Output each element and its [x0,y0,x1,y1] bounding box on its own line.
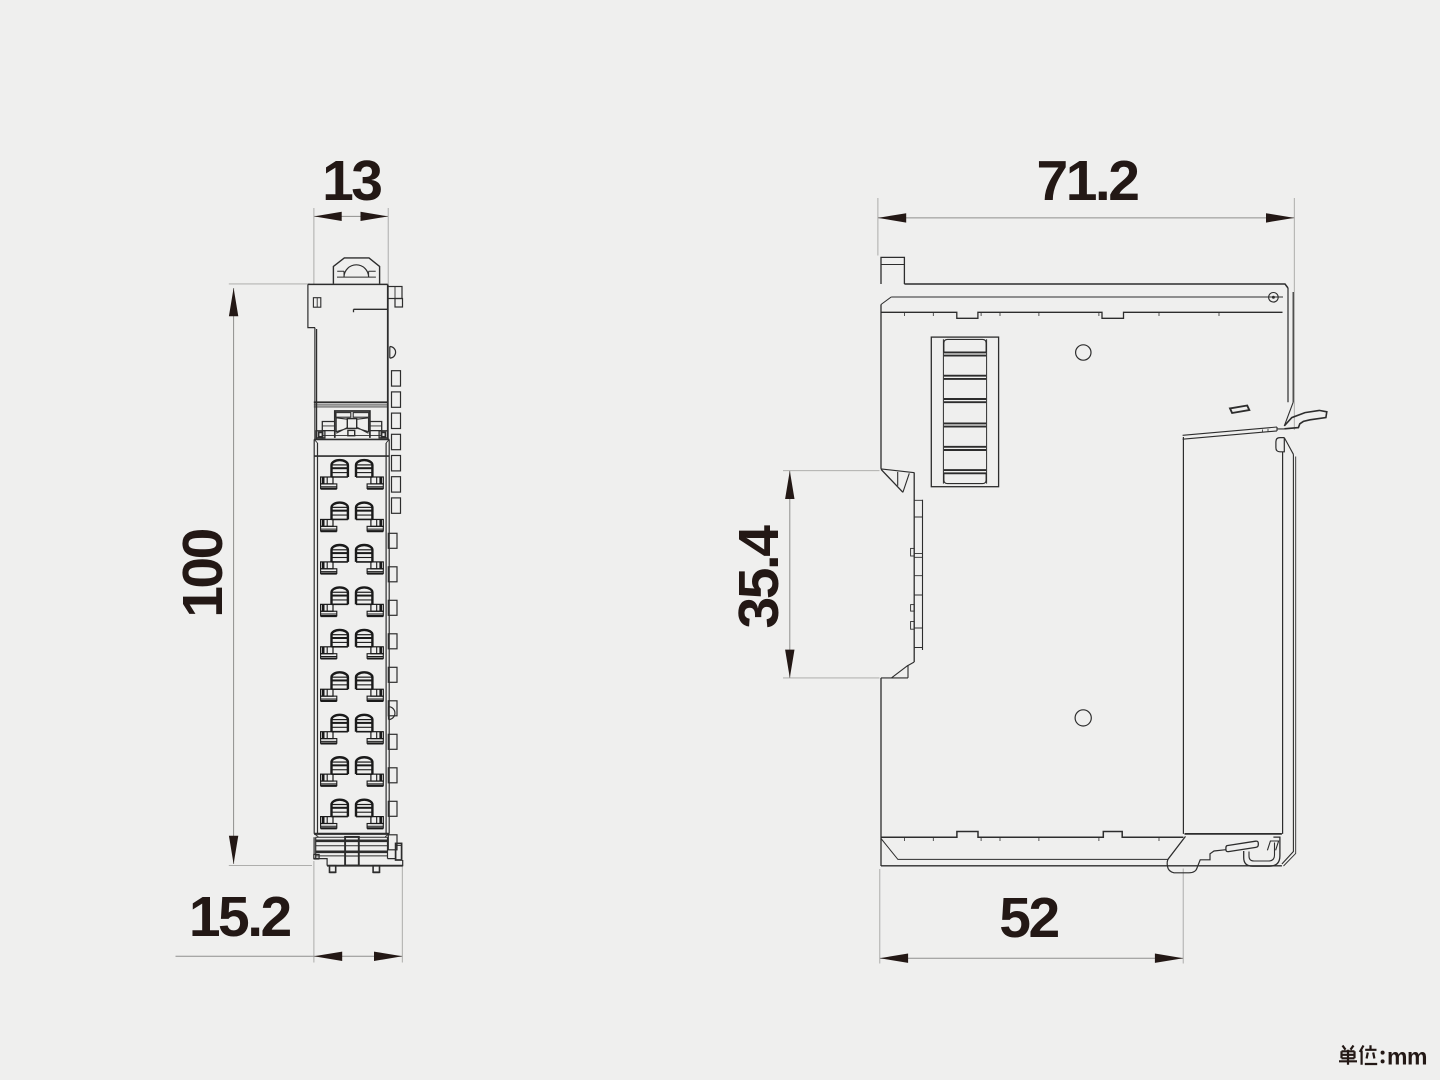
svg-text:mm: mm [1387,1044,1427,1070]
svg-text:13: 13 [322,149,381,213]
svg-text:52: 52 [999,886,1058,950]
svg-text:100: 100 [171,529,235,617]
svg-text:71.2: 71.2 [1037,149,1139,213]
svg-text:15.2: 15.2 [189,885,291,949]
svg-text:35.4: 35.4 [727,525,791,629]
